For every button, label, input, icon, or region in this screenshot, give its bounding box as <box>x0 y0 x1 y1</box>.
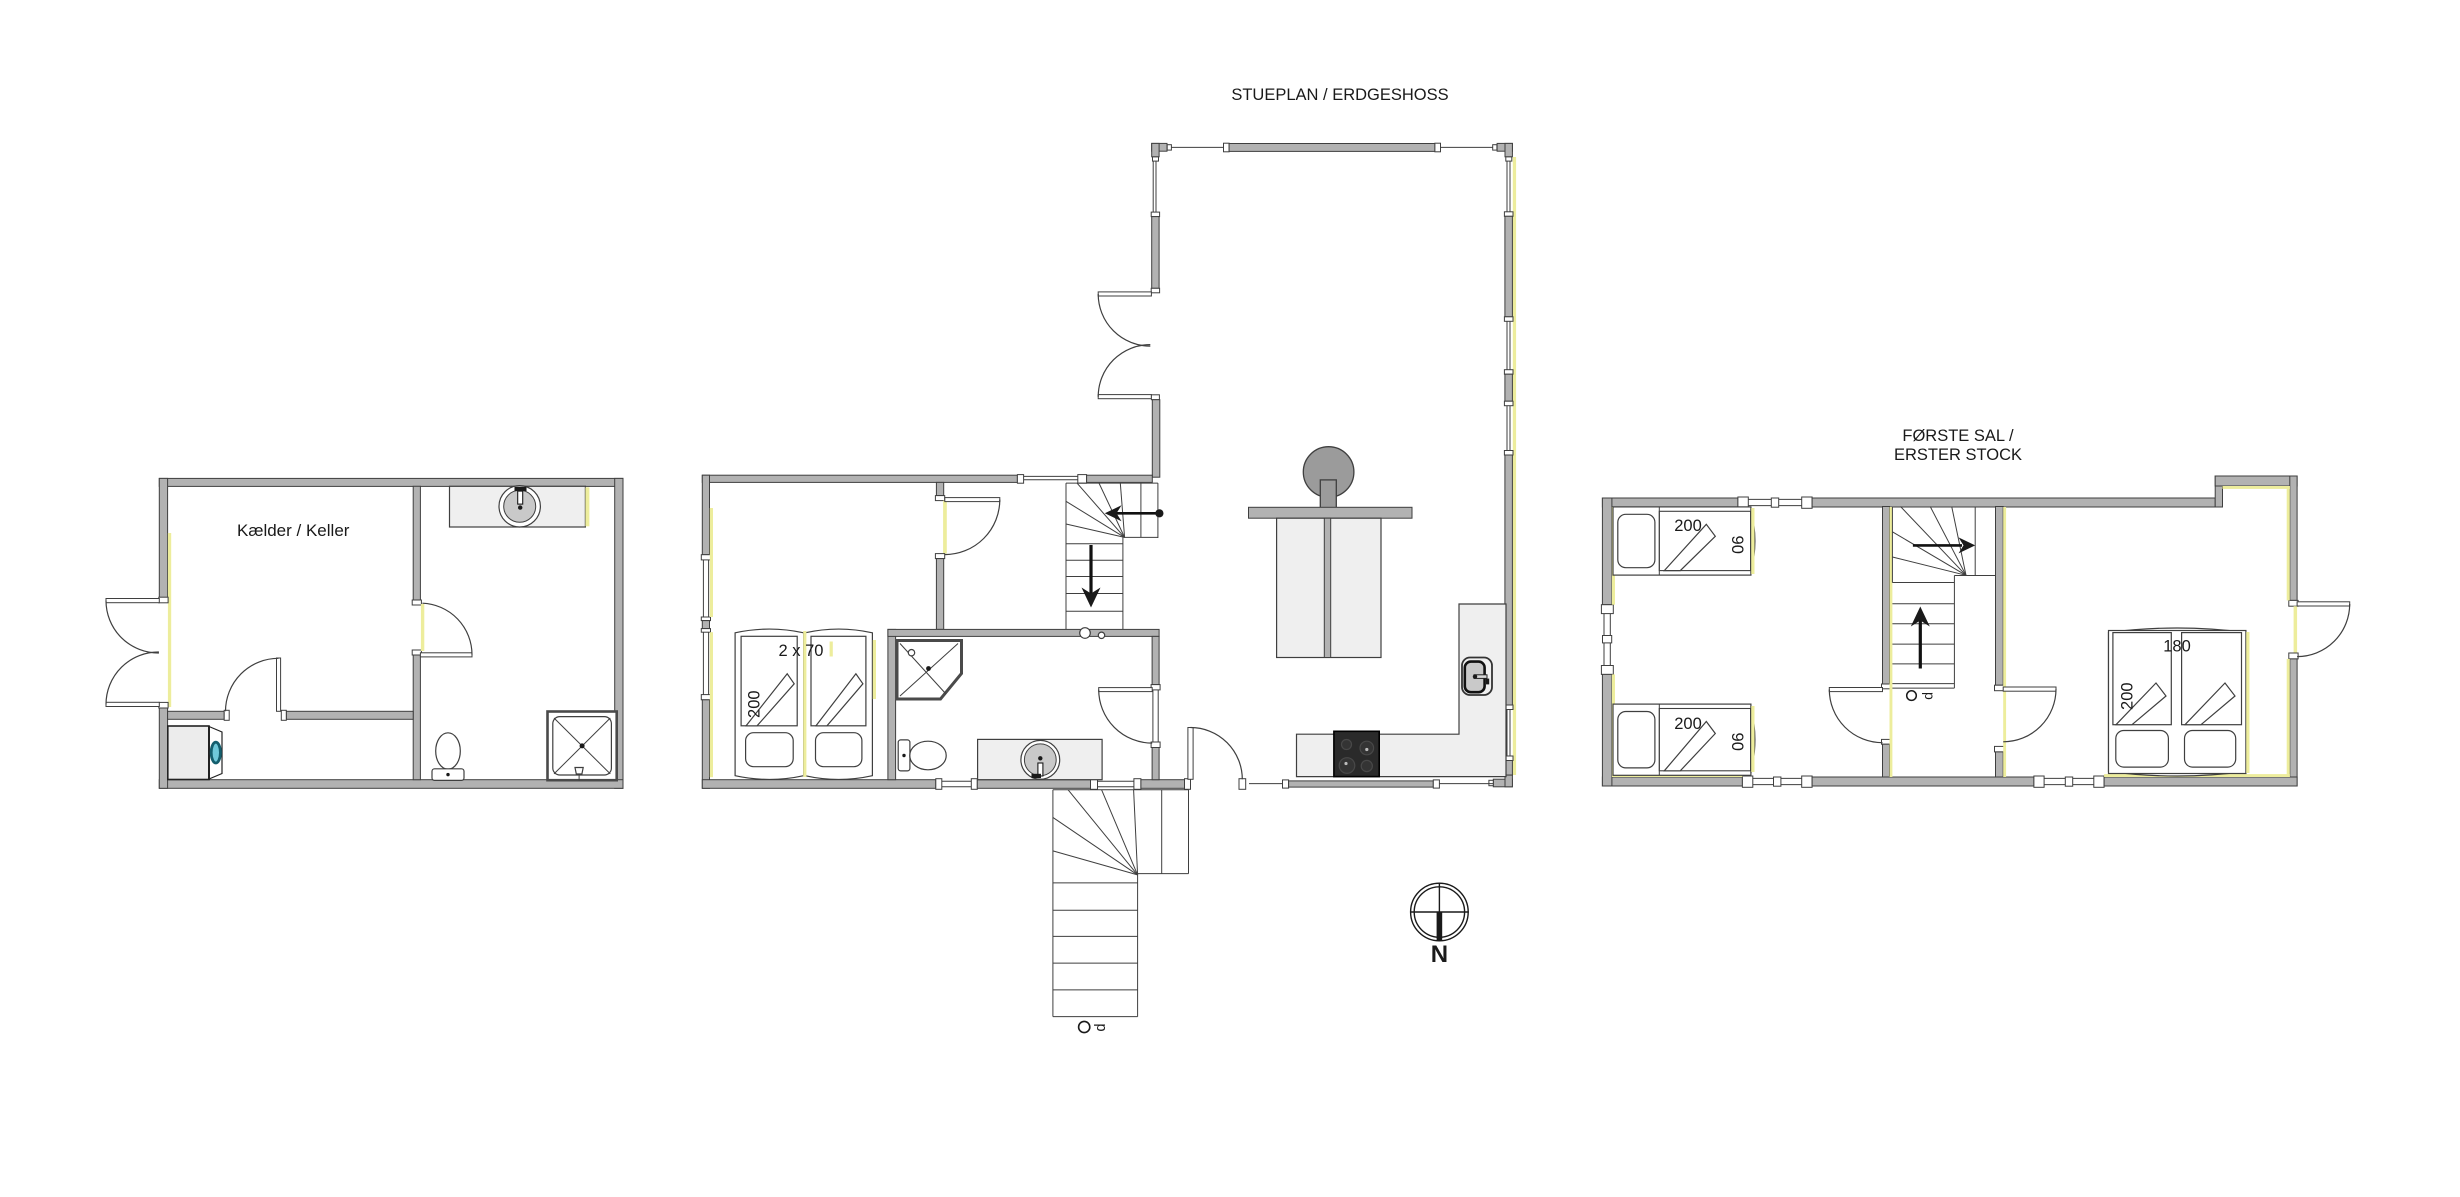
svg-text:p: p <box>1922 692 1938 700</box>
svg-text:STUEPLAN / ERDGESHOSS: STUEPLAN / ERDGESHOSS <box>1231 86 1448 104</box>
svg-text:2 x 70: 2 x 70 <box>779 642 824 660</box>
svg-text:200: 200 <box>1674 715 1702 733</box>
svg-text:N: N <box>1431 941 1448 968</box>
svg-text:p: p <box>1093 1023 1109 1031</box>
svg-text:180: 180 <box>2163 638 2191 656</box>
svg-text:200: 200 <box>1674 517 1702 535</box>
svg-text:Kælder / Keller: Kælder / Keller <box>237 521 350 540</box>
svg-text:90: 90 <box>1728 536 1746 554</box>
svg-text:200: 200 <box>2119 682 2137 710</box>
svg-text:FØRSTE SAL /: FØRSTE SAL / <box>1902 427 2014 445</box>
svg-text:90: 90 <box>1728 733 1746 751</box>
svg-text:200: 200 <box>745 690 763 718</box>
svg-text:ERSTER STOCK: ERSTER STOCK <box>1894 446 2022 464</box>
